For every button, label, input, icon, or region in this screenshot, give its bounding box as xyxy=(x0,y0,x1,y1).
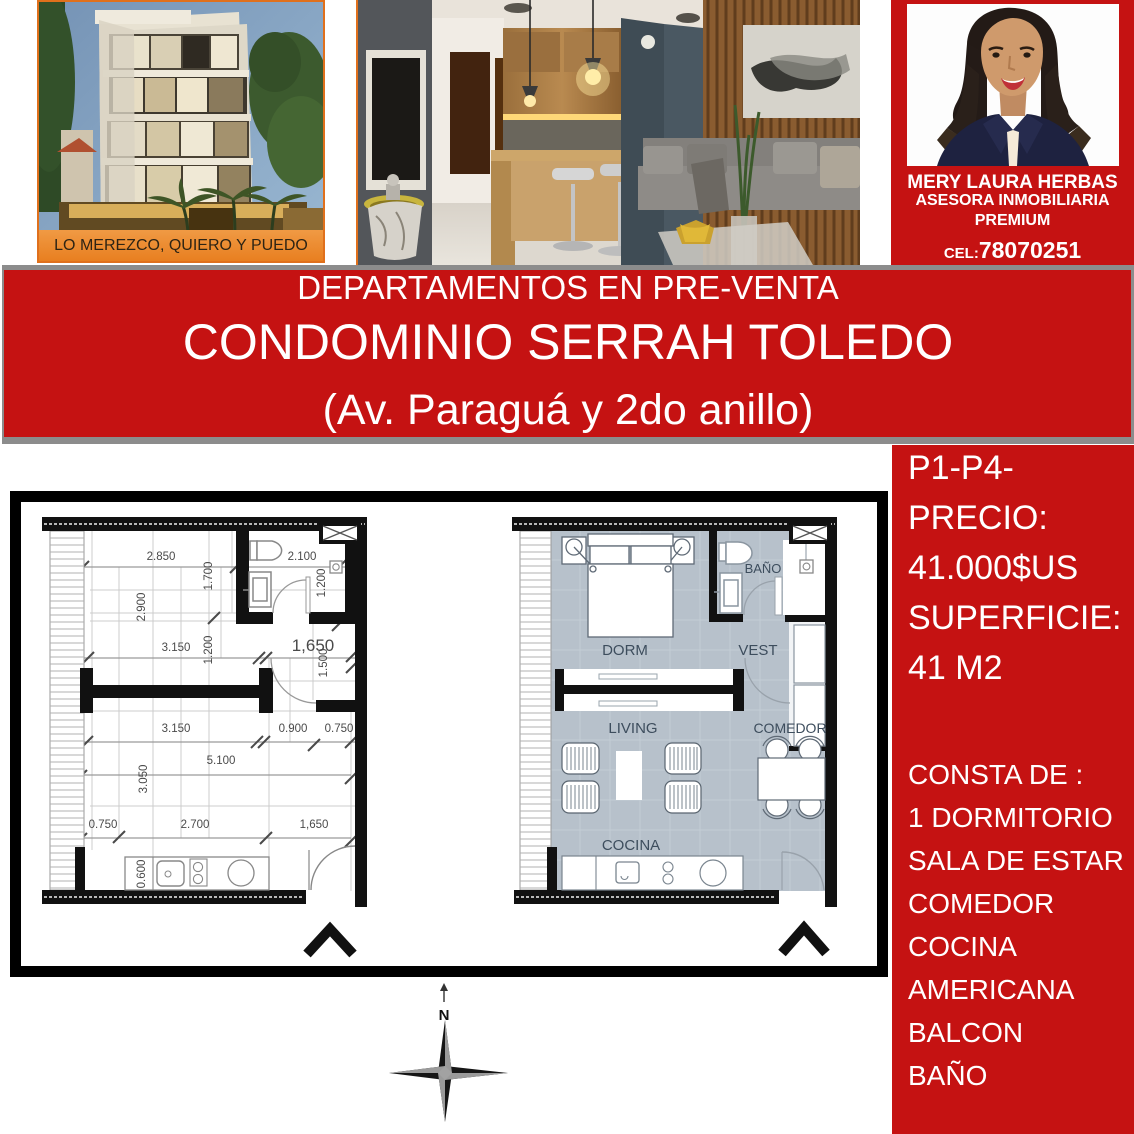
svg-text:N: N xyxy=(439,1007,450,1024)
svg-text:1.200: 1.200 xyxy=(203,636,215,665)
svg-text:COCINA: COCINA xyxy=(602,837,660,854)
svg-text:VEST: VEST xyxy=(738,642,777,659)
svg-text:0.900: 0.900 xyxy=(279,723,308,735)
svg-text:2.100: 2.100 xyxy=(288,551,317,563)
svg-text:3.150: 3.150 xyxy=(162,723,191,735)
svg-text:1,650: 1,650 xyxy=(300,819,329,831)
svg-text:2.700: 2.700 xyxy=(181,819,210,831)
svg-text:1.500: 1.500 xyxy=(318,649,330,678)
svg-text:LIVING: LIVING xyxy=(608,720,657,737)
svg-text:2.850: 2.850 xyxy=(147,551,176,563)
svg-text:BAÑO: BAÑO xyxy=(745,561,782,576)
svg-text:1.200: 1.200 xyxy=(316,569,328,598)
svg-text:0.750: 0.750 xyxy=(325,723,354,735)
svg-text:COMEDOR: COMEDOR xyxy=(753,720,826,736)
svg-text:1.700: 1.700 xyxy=(203,562,215,591)
svg-text:0.750: 0.750 xyxy=(89,819,118,831)
svg-text:2.900: 2.900 xyxy=(136,593,148,622)
svg-text:3.050: 3.050 xyxy=(138,765,150,794)
svg-text:3.150: 3.150 xyxy=(162,642,191,654)
svg-text:DORM: DORM xyxy=(602,642,648,659)
svg-text:0.600: 0.600 xyxy=(136,860,148,889)
svg-text:5.100: 5.100 xyxy=(207,755,236,767)
